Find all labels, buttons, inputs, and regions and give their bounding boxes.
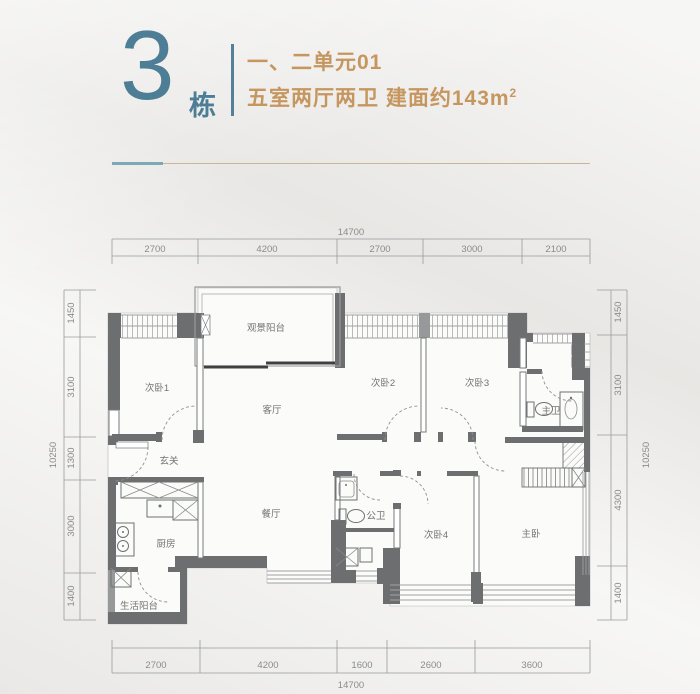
floorplan-drawing: 观景阳台 次卧1 次卧2 次卧3 主卫 客厅 玄关 餐厅 公卫 次卧4 主卧 厨…	[0, 0, 700, 694]
dim-right-seg-1: 3100	[613, 374, 624, 395]
room-label-master-bedroom: 主卧	[521, 528, 541, 540]
room-label-bedroom-4: 次卧4	[424, 529, 448, 541]
room-label-service-balcony: 生活阳台	[120, 600, 158, 612]
room-label-public-bath: 公卫	[366, 511, 386, 522]
dim-top-seg-4: 2100	[545, 244, 566, 255]
room-label-living-room: 客厅	[262, 404, 282, 416]
dim-bottom-seg-4: 3600	[521, 660, 542, 671]
dim-left-seg-2: 1300	[66, 447, 77, 468]
room-label-dining-room: 餐厅	[261, 508, 281, 520]
dimension-right: 1450 3100 4300 1400 10250	[597, 290, 652, 620]
dimension-bottom: 2700 4200 1600 2600 3600 14700	[112, 640, 590, 691]
dim-top-seg-2: 2700	[369, 244, 390, 255]
dim-bottom-total: 14700	[338, 680, 364, 691]
dim-top-total: 14700	[338, 227, 364, 238]
room-label-bedroom-1: 次卧1	[145, 382, 169, 394]
dim-left-seg-0: 1450	[66, 302, 77, 323]
dim-top-seg-0: 2700	[144, 244, 165, 255]
room-label-bedroom-2: 次卧2	[371, 377, 395, 389]
dim-bottom-seg-2: 1600	[351, 660, 372, 671]
dim-right-seg-2: 4300	[613, 489, 624, 510]
dim-left-seg-3: 3000	[66, 515, 77, 536]
floorplan-card: 3 栋 一、二单元01 五室两厅两卫 建面约143m2	[0, 0, 700, 694]
dim-left-seg-4: 1400	[66, 585, 77, 606]
dim-top-seg-3: 3000	[461, 244, 482, 255]
dim-right-seg-3: 1400	[613, 582, 624, 603]
dim-right-total: 10250	[641, 442, 652, 468]
room-label-entryway: 玄关	[159, 455, 179, 467]
room-label-master-bath: 主卫	[541, 405, 561, 417]
room-label-bedroom-3: 次卧3	[465, 377, 489, 389]
room-label-view-balcony: 观景阳台	[247, 322, 285, 334]
dimension-top: 14700 2700 4200 2700 3000 2100	[112, 227, 590, 264]
dim-bottom-seg-0: 2700	[145, 660, 166, 671]
dim-left-seg-1: 3100	[66, 376, 77, 397]
dim-top-seg-1: 4200	[256, 244, 277, 255]
dim-right-seg-0: 1450	[613, 301, 624, 322]
dim-left-total: 10250	[48, 442, 59, 468]
room-label-kitchen: 厨房	[156, 538, 175, 550]
master-closet	[563, 442, 585, 468]
dim-bottom-seg-3: 2600	[420, 660, 441, 671]
dimension-left: 1450 3100 1300 3000 1400 10250	[48, 290, 96, 620]
dim-bottom-seg-1: 4200	[257, 660, 278, 671]
